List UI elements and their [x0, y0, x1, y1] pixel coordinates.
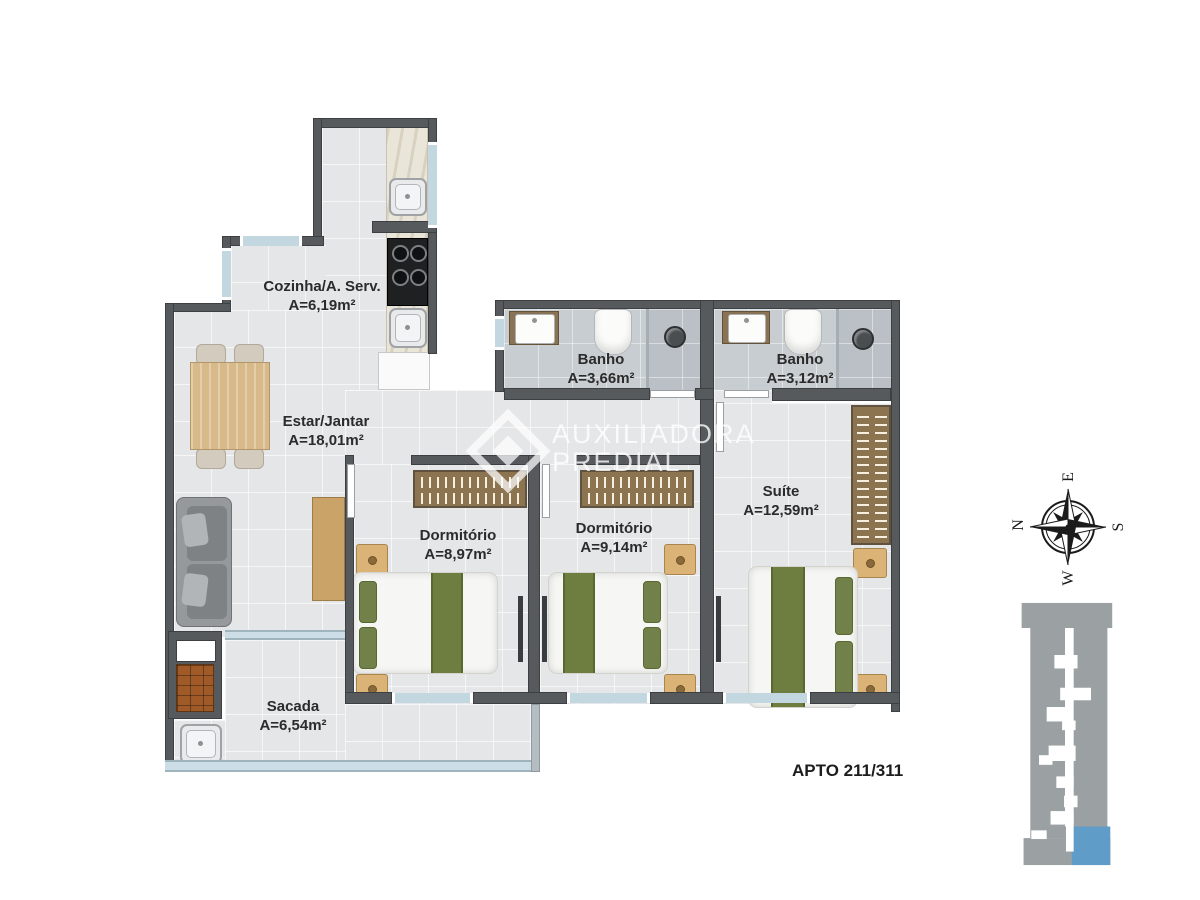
bedroom2-window — [567, 693, 650, 703]
chair-icon — [234, 448, 264, 469]
room-name: Dormitório — [420, 526, 497, 545]
wall-bottom-stub3 — [650, 692, 723, 704]
room-area: A=8,97m² — [420, 545, 497, 564]
bathroom2-door — [724, 390, 769, 398]
building-footprint-icon — [1012, 596, 1118, 872]
bedroom2-door — [542, 464, 550, 518]
barbecue-grill-icon — [176, 664, 214, 712]
dining-table-icon — [190, 362, 270, 450]
room-label-dormitorio1: Dormitório A=8,97m² — [420, 526, 497, 564]
wardrobe-icon — [580, 470, 694, 508]
compass-rose-icon: E N S W — [1008, 467, 1128, 587]
wall-top-left — [165, 303, 231, 312]
kitchen-sink-icon — [389, 308, 427, 348]
wall-bottom-stub4 — [810, 692, 900, 704]
wall-bedroom1-bedroom2 — [528, 455, 540, 704]
wall-bottom-stub1 — [345, 692, 392, 704]
wall-bedroom1-top — [411, 455, 530, 465]
toilet-icon — [784, 309, 822, 355]
wall-mid-vertical — [700, 300, 714, 704]
room-label-banho1: Banho A=3,66m² — [567, 350, 634, 388]
living-window-top — [240, 236, 302, 246]
room-area: A=9,14m² — [576, 538, 653, 557]
wall-bathroom1-bottom — [504, 388, 650, 400]
double-bed-icon — [748, 566, 858, 708]
laundry-tank-icon — [389, 178, 427, 216]
chair-icon — [196, 448, 226, 469]
double-bed-icon — [352, 572, 498, 674]
kitchen-cabinet — [378, 352, 430, 390]
room-label-suite: Suíte A=12,59m² — [743, 482, 818, 520]
tv-panel-icon — [542, 596, 547, 662]
nightstand-icon — [853, 548, 887, 578]
room-area: A=3,12m² — [766, 369, 833, 388]
room-name: Banho — [567, 350, 634, 369]
room-area: A=12,59m² — [743, 501, 818, 520]
sideboard-icon — [312, 497, 345, 601]
bathroom1-door — [650, 390, 695, 398]
wardrobe-icon — [413, 470, 527, 508]
wall-suite-top — [772, 388, 891, 401]
room-area: A=3,66m² — [567, 369, 634, 388]
washbasin-icon — [515, 314, 555, 344]
room-name: Dormitório — [576, 519, 653, 538]
room-label-sacada: Sacada A=6,54m² — [259, 697, 326, 735]
living-window-left — [222, 248, 231, 300]
wall-kitchen-top — [313, 118, 437, 128]
floor-shower1 — [648, 309, 700, 390]
apartment-number-label: APTO 211/311 — [792, 761, 903, 781]
room-name: Sacada — [259, 697, 326, 716]
balcony-glass-railing — [165, 760, 540, 772]
nightstand-icon — [664, 544, 696, 575]
wall-bottom-stub2 — [473, 692, 567, 704]
bathroom1-window — [495, 316, 504, 350]
suite-window — [723, 693, 810, 703]
wall-bedroom2-top — [576, 455, 700, 465]
room-name: Cozinha/A. Serv. — [263, 277, 380, 296]
balcony-sink-icon — [180, 724, 222, 764]
double-bed-icon — [548, 572, 668, 674]
kitchen-window — [428, 142, 437, 228]
balcony-railing-right — [531, 704, 540, 772]
compass-north-label: N — [1010, 519, 1027, 531]
toilet-icon — [594, 309, 632, 355]
suite-door — [716, 402, 724, 452]
tv-panel-icon — [518, 596, 523, 662]
room-label-cozinha: Cozinha/A. Serv. A=6,19m² — [263, 277, 380, 315]
wall-kitchen-left — [313, 118, 322, 246]
sofa-icon — [176, 497, 232, 627]
wall-bathroom1-corner — [695, 388, 714, 400]
unit-location-highlight — [1072, 827, 1111, 866]
tv-panel-icon — [716, 596, 721, 662]
room-label-estar-jantar: Estar/Jantar A=18,01m² — [283, 412, 370, 450]
wall-right-outer — [891, 300, 900, 712]
room-name: Suíte — [743, 482, 818, 501]
floor-balcony-right — [345, 704, 531, 762]
bedroom1-door — [347, 464, 355, 518]
balcony-glass-door — [225, 630, 345, 640]
room-name: Banho — [766, 350, 833, 369]
shower-partition — [836, 309, 839, 390]
room-name: Estar/Jantar — [283, 412, 370, 431]
shower-head-icon — [664, 326, 686, 348]
compass-south-label: S — [1110, 523, 1127, 532]
floor-plan-canvas: Cozinha/A. Serv. A=6,19m² Estar/Jantar A… — [0, 0, 1200, 900]
room-area: A=6,19m² — [263, 296, 380, 315]
cooktop-icon — [387, 238, 428, 306]
bedroom1-window — [392, 693, 473, 703]
room-label-dormitorio2: Dormitório A=9,14m² — [576, 519, 653, 557]
niche-shelf — [176, 640, 216, 662]
shower-head-icon — [852, 328, 874, 350]
wardrobe-icon — [851, 405, 891, 545]
compass-east-label: E — [1060, 472, 1077, 482]
compass-west-label: W — [1060, 570, 1077, 586]
nightstand-icon — [356, 544, 388, 575]
shower-partition — [646, 309, 649, 390]
room-area: A=18,01m² — [283, 431, 370, 450]
room-label-banho2: Banho A=3,12m² — [766, 350, 833, 388]
wall-bathrooms-top — [495, 300, 900, 309]
washbasin-icon — [728, 314, 766, 343]
room-area: A=6,54m² — [259, 716, 326, 735]
